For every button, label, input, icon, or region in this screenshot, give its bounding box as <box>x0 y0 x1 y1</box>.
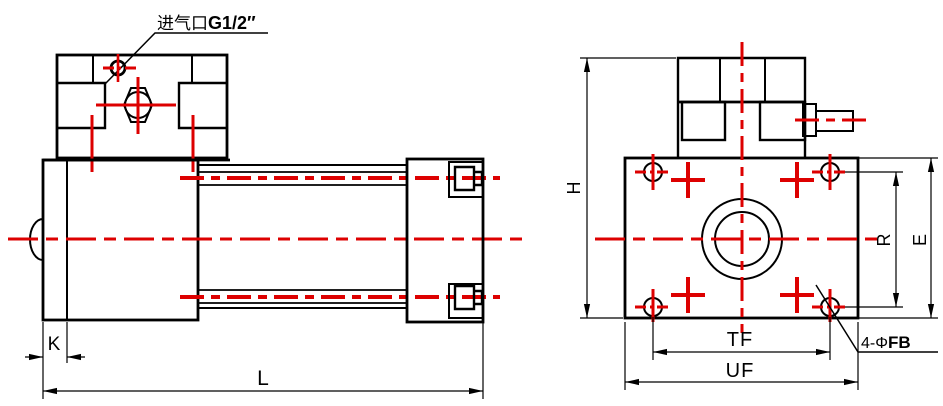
dim-h-label: H <box>564 182 584 195</box>
holes-callout-count: 4-Φ <box>861 335 888 352</box>
air-inlet-leader-line <box>105 33 268 84</box>
cylinder-drawing-canvas: 进气口G1/2″ <box>0 0 943 406</box>
dim-h-extension-lines <box>580 58 676 318</box>
dim-l-label: L <box>257 367 269 390</box>
dim-r-label: R <box>874 234 894 247</box>
dim-tf-label: TF <box>727 329 753 351</box>
end-view: H R E TF UF 4-ΦFB <box>564 42 938 390</box>
technical-drawing-page: 进气口G1/2″ <box>0 0 943 406</box>
holes-callout-size: FB <box>888 333 911 352</box>
air-inlet-label: 进气口G1/2″ <box>157 13 256 33</box>
dim-k-label: K <box>48 334 61 355</box>
holes-callout-label: 4-ΦFB <box>861 333 911 352</box>
side-view: 进气口G1/2″ <box>8 13 523 399</box>
cylinder-tube <box>198 165 407 308</box>
air-inlet-label-size: G1/2″ <box>208 13 256 33</box>
dim-e-label: E <box>910 234 930 246</box>
dim-uf-label: UF <box>726 360 755 382</box>
valve-block-end-foot-left <box>682 102 725 140</box>
air-inlet-label-cn: 进气口 <box>157 14 208 33</box>
